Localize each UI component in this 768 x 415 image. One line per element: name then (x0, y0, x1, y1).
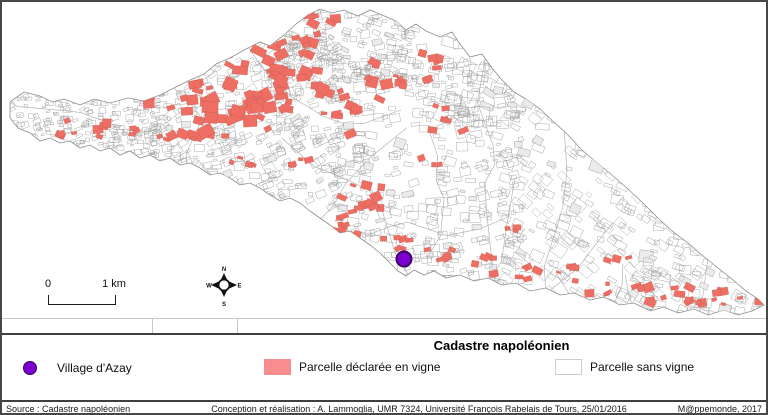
scale-start-label: 0 (45, 278, 51, 290)
plain-parcel-swatch-icon (555, 359, 582, 375)
legend-item-label: Parcelle déclarée en vigne (299, 360, 440, 374)
compass-s-label: S (222, 302, 226, 308)
legend-item-plain-parcel: Parcelle sans vigne (555, 359, 694, 375)
compass-rose-icon: N S W E (206, 264, 242, 308)
legend-item-label: Village d'Azay (57, 361, 132, 375)
map-canvas: 0 1 km N S W E (2, 2, 766, 333)
legend-item-label: Parcelle sans vigne (590, 360, 694, 374)
compass-e-label: E (237, 284, 241, 290)
legend-top-faint-line (2, 318, 766, 319)
legend: Cadastre napoléonien Village d'Azay Parc… (2, 333, 766, 400)
village-marker-icon (23, 361, 37, 375)
legend-item-village: Village d'Azay (23, 361, 132, 375)
figure-page: 0 1 km N S W E Cadastre napoléonien Vill… (0, 0, 768, 415)
legend-divider-stub (152, 319, 153, 333)
scale-bar: 0 1 km (32, 278, 142, 310)
footer-credit: Conception et réalisation : A. Lammoglia… (196, 404, 642, 414)
legend-divider-stub (237, 319, 238, 333)
footer-source: Source : Cadastre napoléonien (6, 404, 196, 414)
legend-item-vine-parcel: Parcelle déclarée en vigne (264, 359, 440, 375)
vine-parcel-swatch-icon (264, 359, 291, 375)
legend-title: Cadastre napoléonien (237, 338, 766, 353)
compass-n-label: N (222, 267, 226, 273)
scale-bracket (48, 295, 116, 305)
scale-end-label: 1 km (102, 278, 126, 290)
figure-footer: Source : Cadastre napoléonien Conception… (2, 400, 766, 415)
compass-w-label: W (206, 284, 212, 290)
village-marker (397, 252, 412, 267)
footer-journal: M@ppemonde, 2017 (642, 404, 762, 414)
